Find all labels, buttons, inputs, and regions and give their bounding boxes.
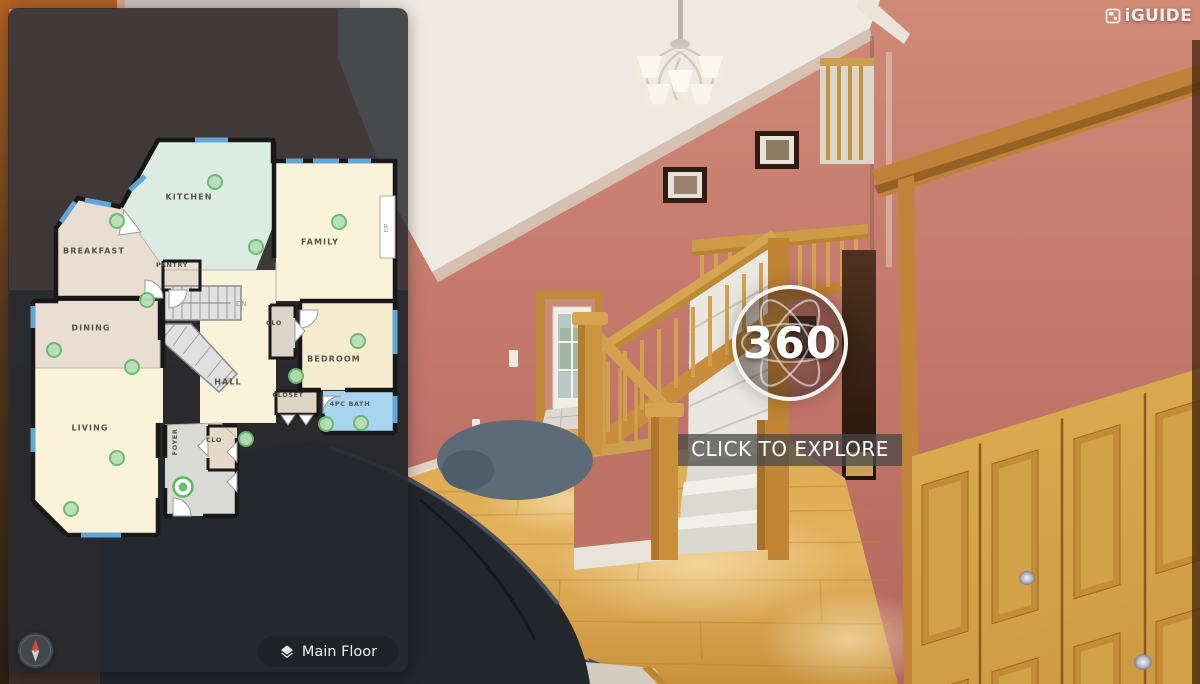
picture-frame: [755, 131, 799, 169]
camera-dot[interactable]: [249, 240, 263, 254]
click-to-explore-label[interactable]: CLICK TO EXPLORE: [678, 434, 902, 466]
camera-dot[interactable]: [289, 369, 303, 383]
floorplan-map[interactable]: F/P UP DN: [23, 128, 413, 548]
camera-dot[interactable]: [319, 417, 333, 431]
stairs-up-label: UP: [223, 377, 232, 385]
door-knob: [1134, 654, 1152, 670]
room-closet: [276, 391, 318, 415]
camera-dot[interactable]: [239, 432, 253, 446]
camera-dot[interactable]: [140, 293, 154, 307]
floor-selector-label: Main Floor: [302, 644, 377, 660]
badge-360[interactable]: 360: [732, 285, 848, 401]
camera-dot[interactable]: [47, 343, 61, 357]
iguide-logo-text: iGUIDE: [1125, 6, 1192, 26]
layers-icon: [279, 644, 295, 660]
camera-dot[interactable]: [125, 360, 139, 374]
upper-balcony-opening: [820, 58, 874, 164]
camera-dot-active[interactable]: [174, 478, 193, 497]
iguide-logo[interactable]: iGUIDE: [1105, 6, 1192, 26]
camera-dot[interactable]: [110, 451, 124, 465]
svg-text:F/P: F/P: [384, 223, 390, 232]
room-family: [276, 161, 395, 301]
floorplan-panel: F/P UP DN: [8, 8, 408, 672]
door-knob: [1019, 571, 1035, 585]
compass-button[interactable]: [17, 632, 54, 669]
badge-360-label: 360: [743, 318, 838, 369]
camera-dot[interactable]: [332, 215, 346, 229]
viewer-stage: F/P UP DN: [0, 0, 1200, 684]
room-closet-upper: [270, 305, 295, 358]
camera-dot[interactable]: [351, 334, 365, 348]
picture-frame: [663, 167, 707, 203]
camera-dot[interactable]: [110, 214, 124, 228]
camera-dot[interactable]: [354, 416, 368, 430]
compass-needle-icon: [19, 634, 52, 667]
room-living: [33, 368, 163, 535]
fireplace: F/P: [380, 196, 395, 258]
room-dining: [33, 301, 160, 368]
iguide-logo-icon: [1105, 8, 1121, 24]
camera-dot[interactable]: [208, 175, 222, 189]
wall-corner-trim: [886, 52, 892, 267]
floor-selector-button[interactable]: Main Floor: [258, 636, 398, 667]
camera-dot[interactable]: [64, 502, 78, 516]
stairs-down-label: DN: [236, 300, 247, 308]
